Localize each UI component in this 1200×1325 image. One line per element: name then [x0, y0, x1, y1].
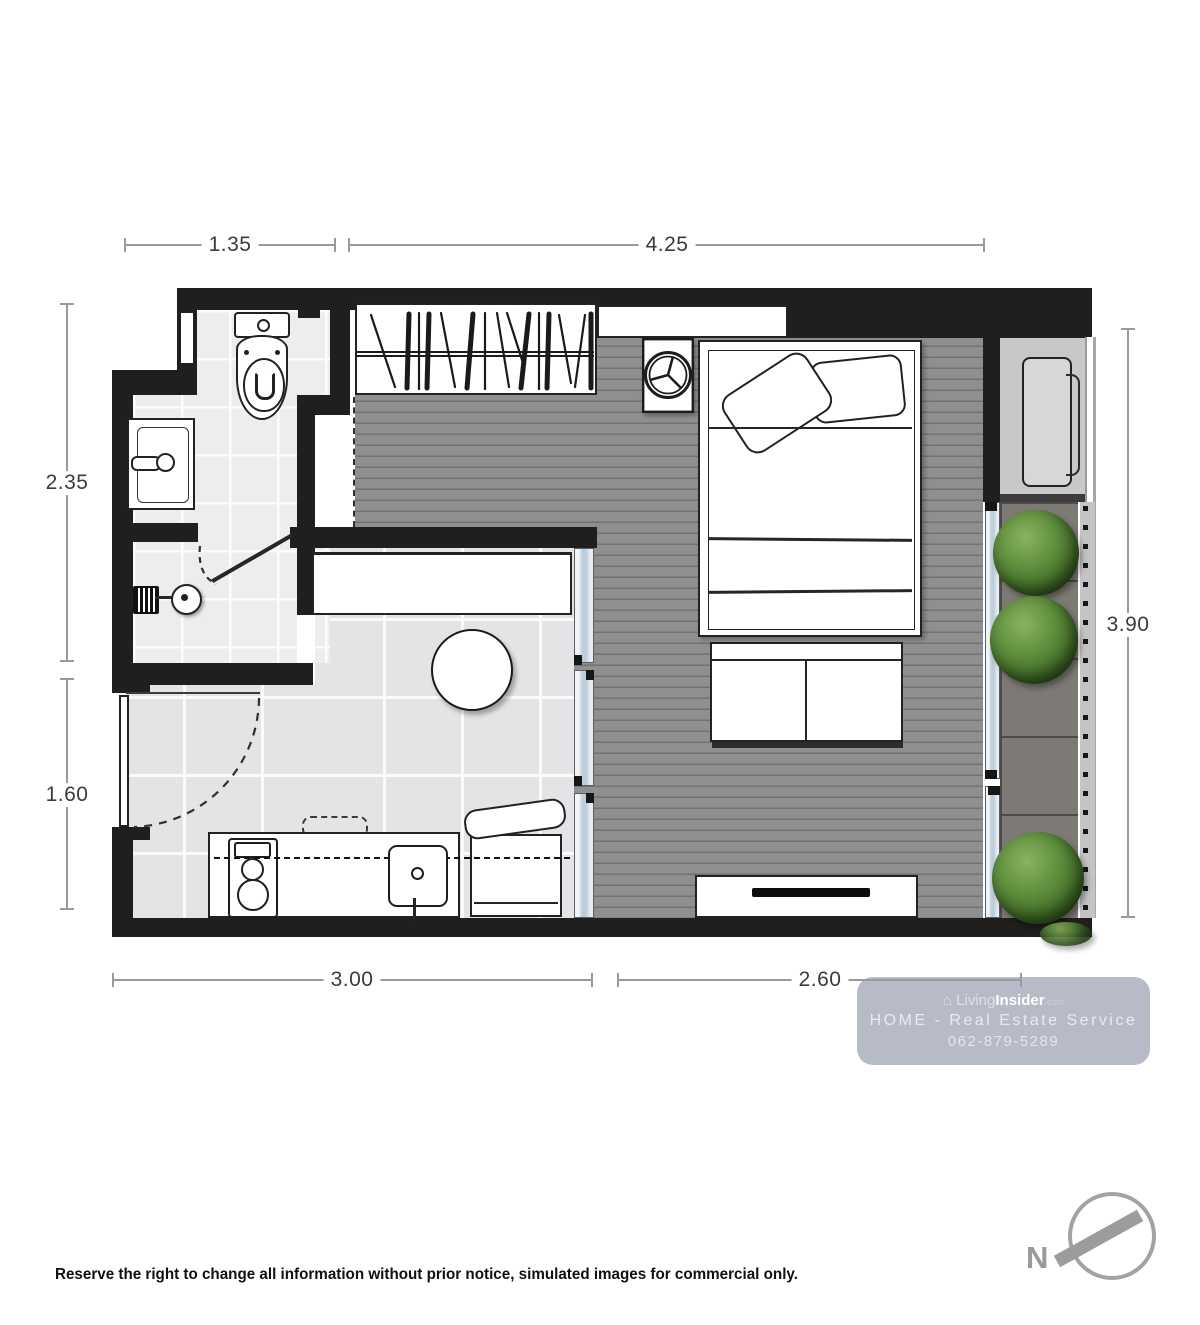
work-desk	[312, 552, 572, 615]
watermark-badge: ⌂ LivingInsider.com HOME - Real Estate S…	[857, 977, 1150, 1065]
dim-label: 2.60	[792, 968, 849, 992]
wall-bottom	[112, 918, 1092, 937]
toilet-seat-inner	[255, 372, 275, 400]
toilet-paper-holder	[298, 310, 320, 318]
bath-wall-niche	[297, 615, 315, 663]
wall-bath-right-upper	[330, 310, 350, 400]
disclaimer-text: Reserve the right to change all informat…	[55, 1266, 798, 1284]
toilet-flush-button	[257, 319, 270, 332]
wall-kitchen-bedroom	[290, 527, 597, 548]
dim-label: 1.35	[202, 233, 259, 257]
stove-burner-small	[241, 858, 264, 881]
plant-2	[990, 596, 1078, 684]
dim-label: 1.60	[39, 783, 96, 807]
sliding-partition-panel-3	[574, 793, 594, 918]
wardrobe	[355, 303, 597, 395]
kitchen-faucet	[413, 898, 416, 921]
sink-drain	[411, 867, 424, 880]
ac-unit-handle	[1066, 374, 1080, 476]
stove-grate	[234, 842, 271, 858]
dim-label: 3.90	[1100, 613, 1157, 637]
dim-label: 2.35	[39, 471, 96, 495]
watermark-service-line: HOME - Real Estate Service	[857, 1012, 1150, 1030]
stove-burner-large	[237, 879, 269, 911]
shower-mixer	[133, 586, 159, 614]
grass-tuft	[1040, 922, 1092, 946]
wall-vanity-half	[128, 523, 198, 542]
house-logo-icon: ⌂	[943, 992, 952, 1009]
wall-bedroom-ac	[983, 337, 1000, 502]
dim-label: 3.00	[324, 968, 381, 992]
watermark-phone: 062-879-5289	[857, 1033, 1150, 1050]
sliding-partition-panel-2	[574, 670, 594, 786]
floor-transition-dashed-line	[353, 397, 355, 527]
entry-door-leaf	[119, 695, 129, 827]
sheet-fold	[709, 427, 912, 429]
watermark-brand: ⌂ LivingInsider.com	[857, 992, 1150, 1009]
entry-door-swing-arc	[126, 695, 266, 835]
dining-table	[431, 629, 513, 711]
ac-condenser-unit	[1022, 357, 1072, 487]
wardrobe-hangers	[357, 305, 594, 392]
sliding-partition-panel-1	[574, 548, 594, 663]
headboard-shelf	[597, 305, 788, 338]
ac-balcony-divider	[997, 494, 1085, 502]
bathroom-corner-exterior	[133, 310, 177, 370]
tv-screen	[752, 888, 870, 897]
bench-shadow	[712, 742, 903, 748]
wall-headboard	[788, 288, 1085, 338]
balcony-rail-dots	[1083, 506, 1088, 916]
fan-unit	[642, 338, 694, 413]
north-label: N	[1026, 1240, 1048, 1276]
entry-door-lintel	[126, 692, 260, 694]
floor-plan-canvas: 1.35 4.25 2.35 1.60 3.90 3.00 2.	[0, 0, 1200, 1325]
sink-faucet-handle	[156, 453, 175, 472]
plant-3	[992, 832, 1084, 924]
wall-top-right-corner	[1085, 288, 1092, 337]
wall-shaft-notch	[181, 313, 193, 363]
laundry-box	[470, 834, 562, 917]
fan-icon	[642, 338, 694, 413]
plant-1	[993, 510, 1079, 596]
dim-label: 4.25	[639, 233, 696, 257]
